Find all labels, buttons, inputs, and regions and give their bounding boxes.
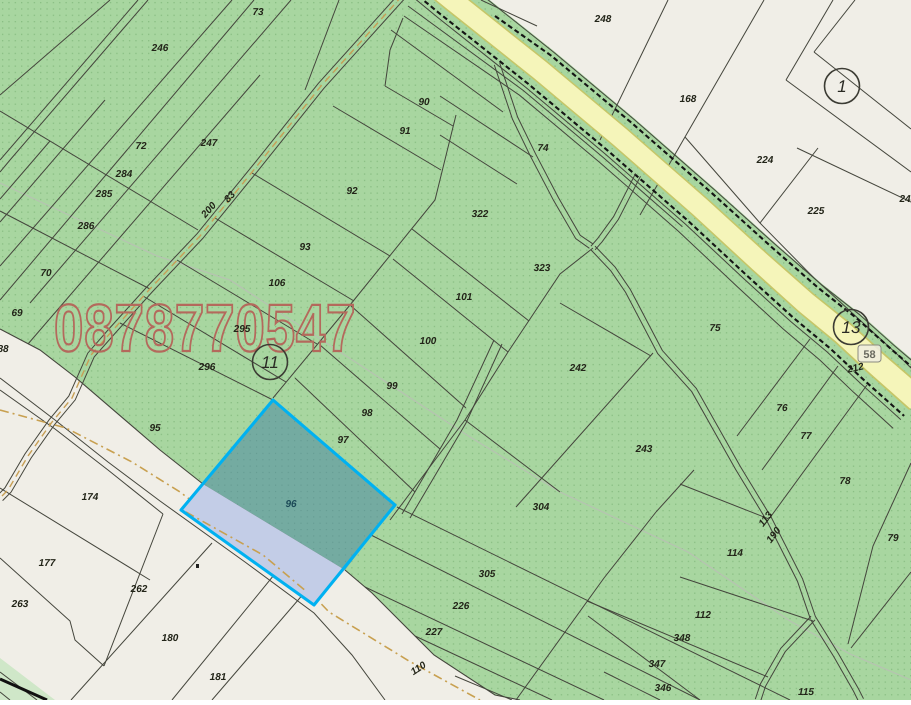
svg-text:284: 284 (115, 169, 133, 180)
svg-text:93: 93 (299, 242, 311, 253)
svg-text:90: 90 (418, 97, 430, 108)
svg-text:100: 100 (420, 336, 437, 347)
svg-text:99: 99 (386, 381, 398, 392)
svg-text:13: 13 (842, 318, 861, 337)
svg-text:75: 75 (709, 323, 721, 334)
svg-text:72: 72 (135, 141, 147, 152)
svg-text:11: 11 (261, 353, 279, 372)
svg-text:227: 227 (425, 627, 443, 638)
svg-text:1: 1 (837, 77, 846, 96)
svg-text:74: 74 (537, 143, 549, 154)
svg-text:304: 304 (533, 502, 550, 513)
svg-text:24: 24 (898, 194, 911, 205)
svg-text:77: 77 (800, 431, 812, 442)
svg-text:348: 348 (674, 633, 691, 644)
svg-text:92: 92 (346, 186, 358, 197)
svg-text:322: 322 (472, 209, 489, 220)
svg-text:91: 91 (399, 126, 411, 137)
svg-text:168: 168 (680, 94, 697, 105)
svg-text:180: 180 (162, 633, 179, 644)
svg-text:0878770547: 0878770547 (54, 291, 356, 366)
svg-text:285: 285 (95, 189, 113, 200)
svg-text:295: 295 (233, 324, 251, 335)
svg-text:246: 246 (151, 43, 169, 54)
svg-text:226: 226 (452, 601, 470, 612)
svg-text:88: 88 (0, 344, 9, 355)
svg-text:248: 248 (594, 14, 612, 25)
svg-text:98: 98 (361, 408, 373, 419)
svg-text:106: 106 (269, 278, 286, 289)
svg-text:181: 181 (210, 672, 227, 683)
svg-text:346: 346 (655, 683, 672, 694)
svg-text:286: 286 (77, 221, 95, 232)
svg-text:115: 115 (798, 687, 814, 698)
svg-text:263: 263 (11, 599, 29, 610)
svg-text:177: 177 (39, 558, 56, 569)
svg-text:242: 242 (569, 363, 587, 374)
svg-text:224: 224 (756, 155, 774, 166)
svg-text:97: 97 (337, 435, 349, 446)
svg-text:95: 95 (149, 423, 161, 434)
svg-text:347: 347 (649, 659, 666, 670)
svg-text:96: 96 (285, 499, 297, 510)
svg-text:243: 243 (635, 444, 653, 455)
svg-text:70: 70 (40, 268, 52, 279)
svg-text:73: 73 (252, 7, 264, 18)
svg-text:79: 79 (887, 533, 899, 544)
svg-text:78: 78 (839, 476, 851, 487)
svg-text:225: 225 (807, 206, 825, 217)
svg-text:112: 112 (695, 610, 711, 621)
svg-text:247: 247 (200, 138, 218, 149)
svg-text:262: 262 (130, 584, 148, 595)
svg-text:323: 323 (534, 263, 551, 274)
svg-text:69: 69 (11, 308, 23, 319)
svg-text:296: 296 (198, 362, 216, 373)
svg-text:114: 114 (727, 548, 743, 559)
svg-text:76: 76 (776, 403, 788, 414)
svg-text:174: 174 (82, 492, 99, 503)
svg-text:305: 305 (479, 569, 496, 580)
svg-text:101: 101 (456, 292, 473, 303)
svg-text:58: 58 (863, 349, 875, 361)
